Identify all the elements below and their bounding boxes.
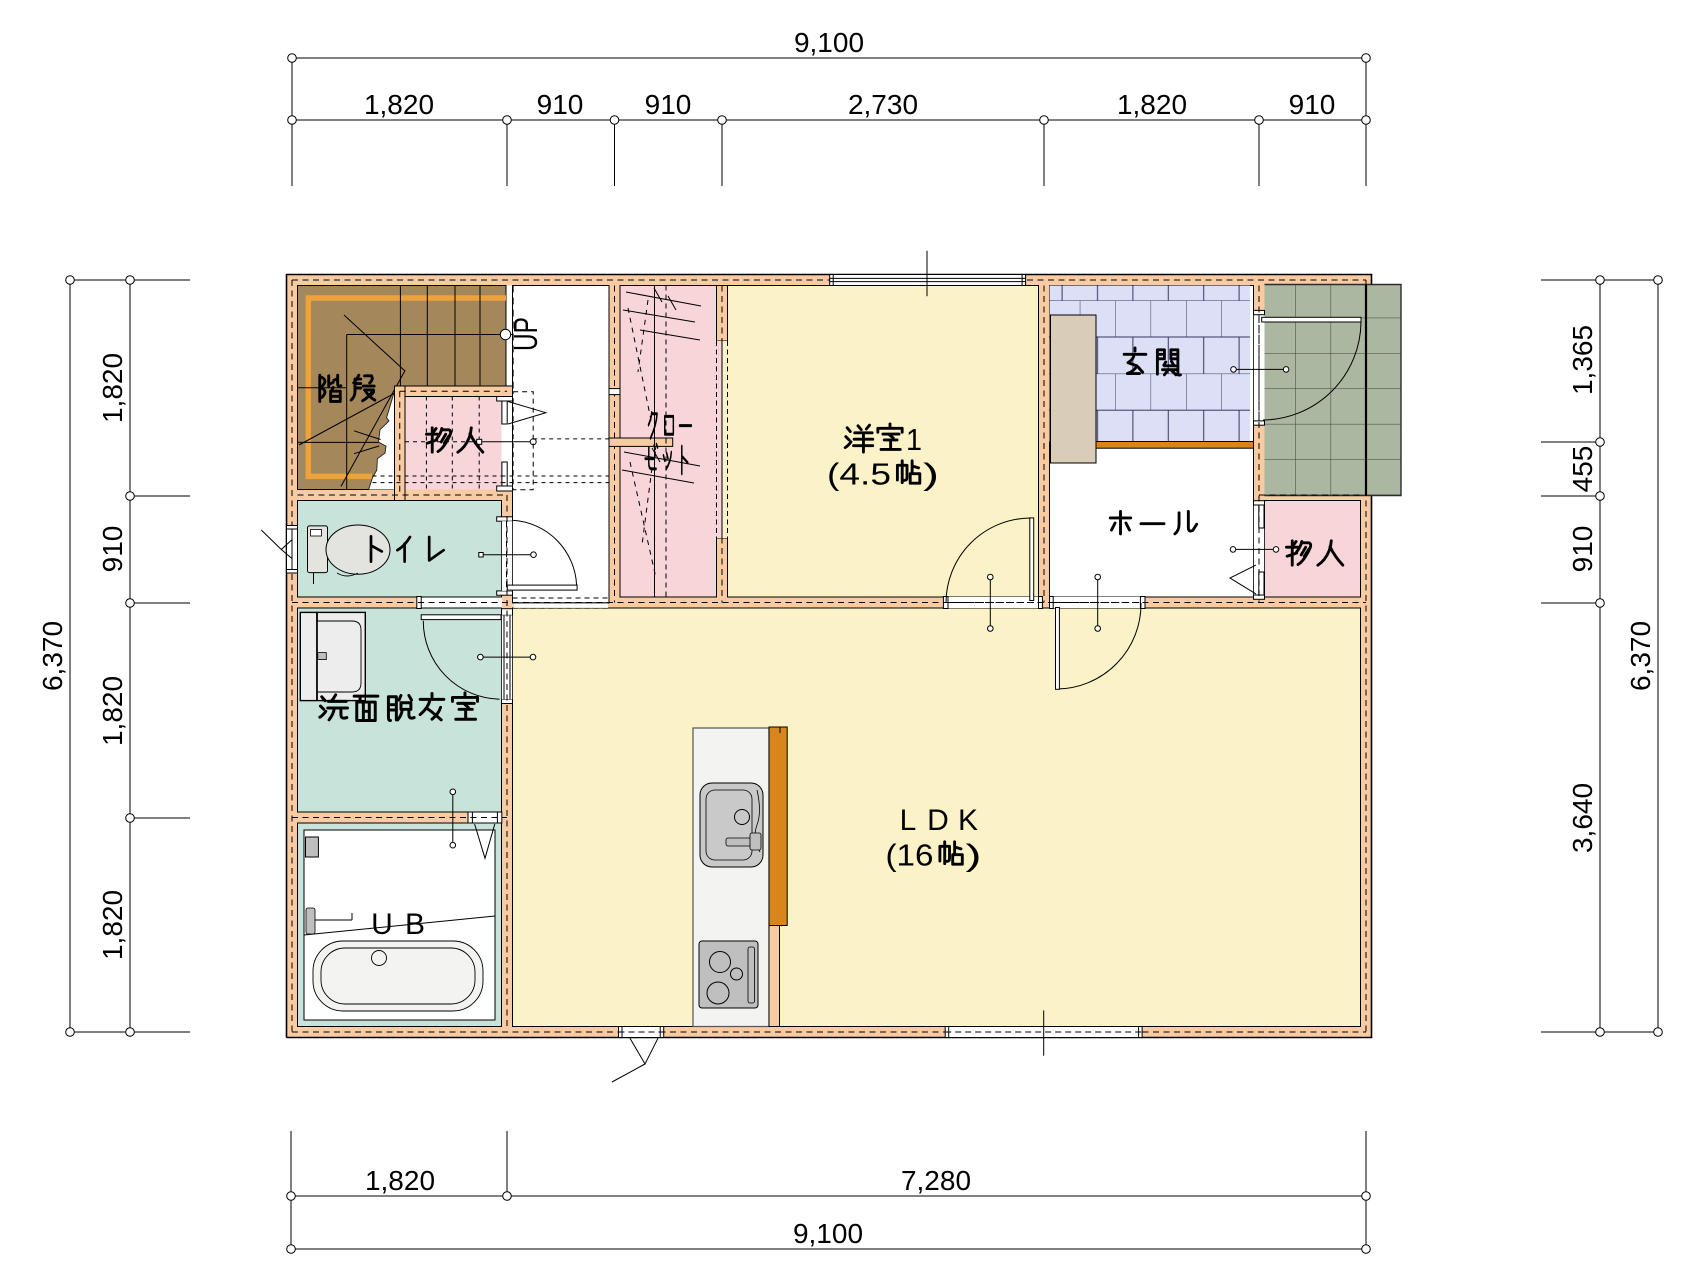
svg-text:L: L: [900, 804, 917, 837]
svg-text:1,820: 1,820: [97, 676, 128, 746]
svg-text:3,640: 3,640: [1567, 783, 1598, 853]
svg-text:2,730: 2,730: [848, 89, 918, 120]
svg-text:7,280: 7,280: [901, 1165, 971, 1196]
svg-text:1: 1: [906, 422, 922, 457]
svg-text:): ): [923, 457, 939, 492]
svg-text:9,100: 9,100: [794, 27, 864, 58]
svg-text:(16: (16: [886, 838, 934, 873]
svg-text:6,370: 6,370: [37, 621, 68, 691]
svg-text:UP: UP: [507, 317, 544, 351]
svg-text:910: 910: [97, 526, 128, 573]
svg-text:1,820: 1,820: [365, 1165, 435, 1196]
svg-text:6,370: 6,370: [1625, 621, 1656, 691]
svg-text:(4.5: (4.5: [827, 457, 891, 492]
svg-text:U: U: [371, 908, 393, 941]
svg-text:1,820: 1,820: [1117, 89, 1187, 120]
svg-text:910: 910: [1567, 526, 1598, 573]
svg-text:1,820: 1,820: [97, 353, 128, 423]
svg-text:K: K: [958, 804, 978, 837]
svg-text:1,820: 1,820: [97, 890, 128, 960]
svg-text:B: B: [405, 908, 425, 941]
svg-text:9,100: 9,100: [793, 1218, 863, 1249]
svg-text:D: D: [927, 804, 949, 837]
svg-text:910: 910: [537, 89, 584, 120]
svg-text:1,820: 1,820: [364, 89, 434, 120]
svg-text:): ): [966, 838, 982, 873]
svg-text:910: 910: [1289, 89, 1336, 120]
svg-text:910: 910: [645, 89, 692, 120]
svg-text:455: 455: [1567, 446, 1598, 493]
svg-text:1,365: 1,365: [1567, 325, 1598, 395]
